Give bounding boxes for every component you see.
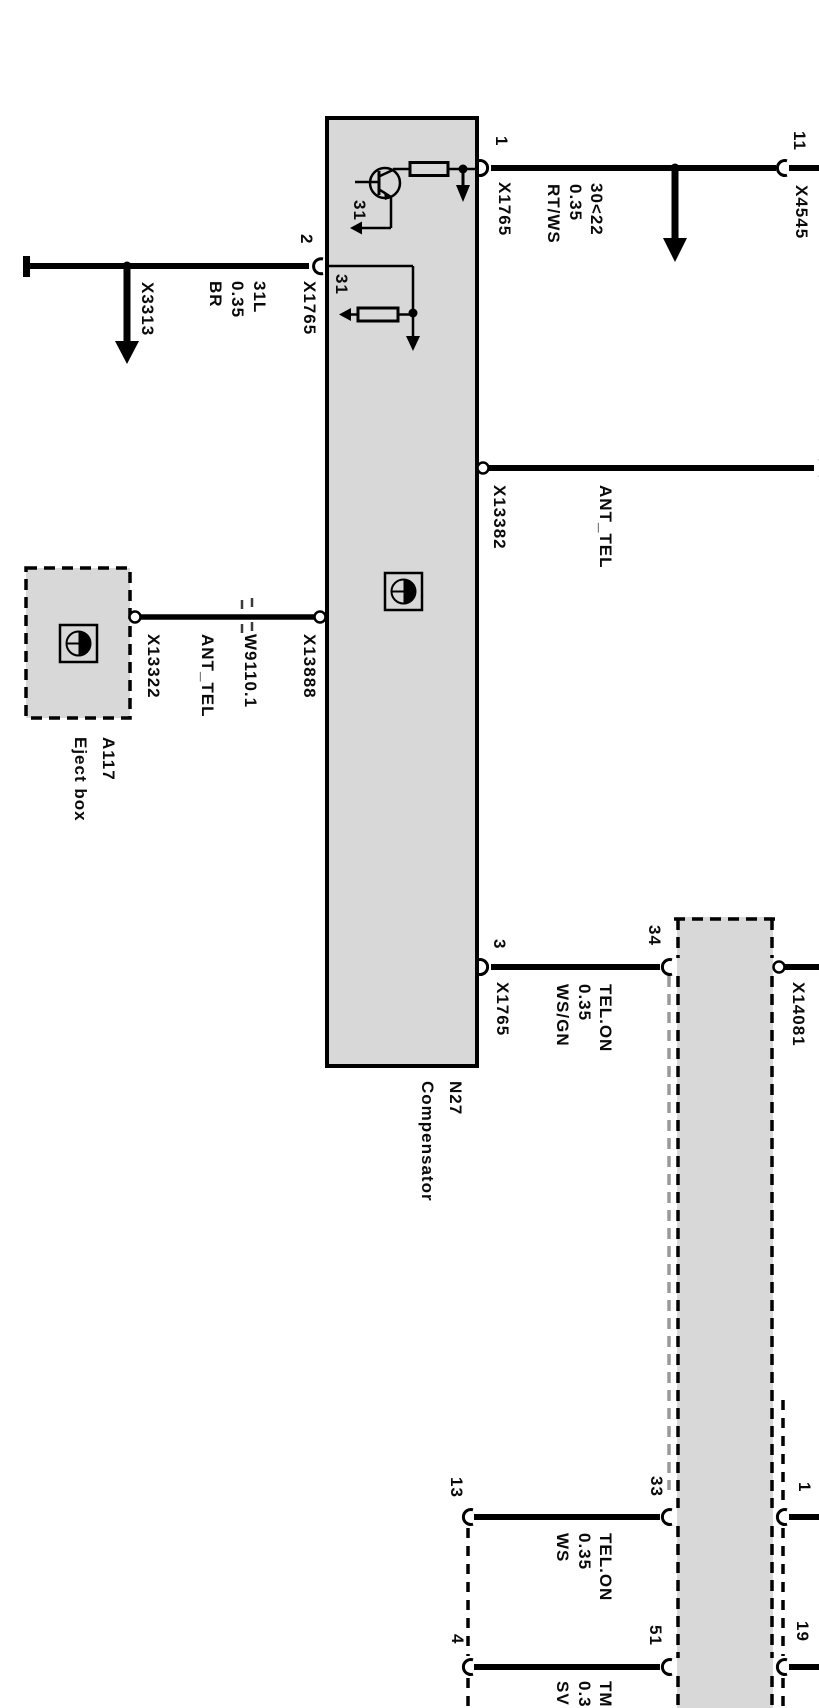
wire-label-kl30-color: RT/WS [543, 184, 563, 244]
wire-label-tm-gauge: 0.3 [574, 1681, 594, 1708]
ground-label-upper: 31 [349, 200, 369, 221]
connector-label-x13382: X13382 [489, 485, 509, 550]
connector-label-x3313: X3313 [137, 282, 157, 336]
pin2-contact [314, 259, 323, 274]
pin13-contact [463, 1510, 473, 1525]
connector-label-x1765-pin1: X1765 [494, 182, 514, 236]
wire-label-telon2-circuit: TEL.ON [595, 1533, 615, 1601]
splice-label-w9110: W9110.1 [240, 634, 260, 708]
pin33-number: 33 [646, 1476, 666, 1497]
wire-kl30 [478, 160, 819, 262]
compensator-code: N27 [445, 1081, 465, 1115]
connector-label-x14081: X14081 [788, 982, 808, 1047]
wire-ant-tel-main [478, 461, 819, 476]
wire-label-telon-color: WS/GN [552, 984, 572, 1047]
pin19-contact [777, 1660, 787, 1675]
pin3-number: 3 [489, 939, 509, 949]
pin34-number: 34 [644, 925, 664, 946]
wire-label-kl31l-circuit: 31L [249, 281, 269, 313]
pin1-right-contact [777, 1510, 787, 1525]
pin34-contact [662, 960, 672, 975]
wiring-graphics [0, 0, 819, 1708]
socket-contact [315, 612, 326, 623]
pin4-number: 4 [447, 1634, 467, 1644]
wire-ant-tel-eject [130, 598, 326, 633]
connector-label-x13888: X13888 [299, 634, 319, 699]
pin51-contact [662, 1660, 672, 1675]
wire-label-telon2-gauge: 0.35 [574, 1533, 594, 1570]
pin33-contact [662, 1510, 672, 1525]
wire-label-telon-circuit: TEL.ON [595, 984, 615, 1052]
wire-label-ant-tel-main: ANT_TEL [595, 485, 615, 569]
eject-box-name: Eject box [70, 737, 90, 822]
connector-label-x13322: X13322 [143, 634, 163, 699]
pin2-number: 2 [296, 234, 316, 244]
socket-contact [478, 463, 489, 474]
wire-label-kl30-gauge: 0.35 [565, 184, 585, 221]
wiring-diagram: 2 X1765 31L 0.35 BR X3313 1 X1765 30<22 … [0, 0, 819, 1708]
wire-label-kl31l-color: BR [205, 281, 225, 308]
wire-label-kl30-circuit: 30<22 [586, 183, 606, 236]
pin1-number: 1 [491, 136, 511, 146]
eject-box-code: A117 [98, 737, 118, 781]
connector-box-body [669, 917, 775, 1708]
wire-kl31l [23, 256, 323, 364]
pin51-number: 51 [645, 1625, 665, 1646]
pin3-contact [478, 960, 488, 975]
pin19-number: 19 [792, 1621, 812, 1642]
connector-label-x1765-pin3: X1765 [492, 982, 512, 1036]
pin11-number: 11 [789, 131, 809, 151]
continuation-arrow [115, 341, 139, 364]
connector-label-x4545: X4545 [791, 185, 811, 239]
pin1-contact [478, 160, 488, 175]
wire-label-ant-tel-eject: ANT_TEL [197, 634, 217, 718]
compensator-name: Compensator [417, 1081, 437, 1202]
wire-label-kl31l-gauge: 0.35 [227, 281, 247, 318]
pin1-right-number: 1 [794, 1482, 814, 1492]
connector-label-x1765-pin2: X1765 [299, 281, 319, 335]
continuation-arrow [663, 238, 687, 262]
ground-label-lower: 31 [331, 274, 351, 295]
pin4-contact [463, 1660, 473, 1675]
socket-contact [774, 962, 785, 973]
socket-contact [130, 612, 141, 623]
wire-label-telon-gauge: 0.35 [574, 984, 594, 1021]
pin11-contact [777, 160, 787, 175]
wire-label-telon2-color: WS [552, 1533, 572, 1562]
wire-label-tm-color: SV [552, 1681, 572, 1706]
pin13-number: 13 [446, 1477, 466, 1498]
wire-label-tm-circuit: TM [595, 1681, 615, 1708]
